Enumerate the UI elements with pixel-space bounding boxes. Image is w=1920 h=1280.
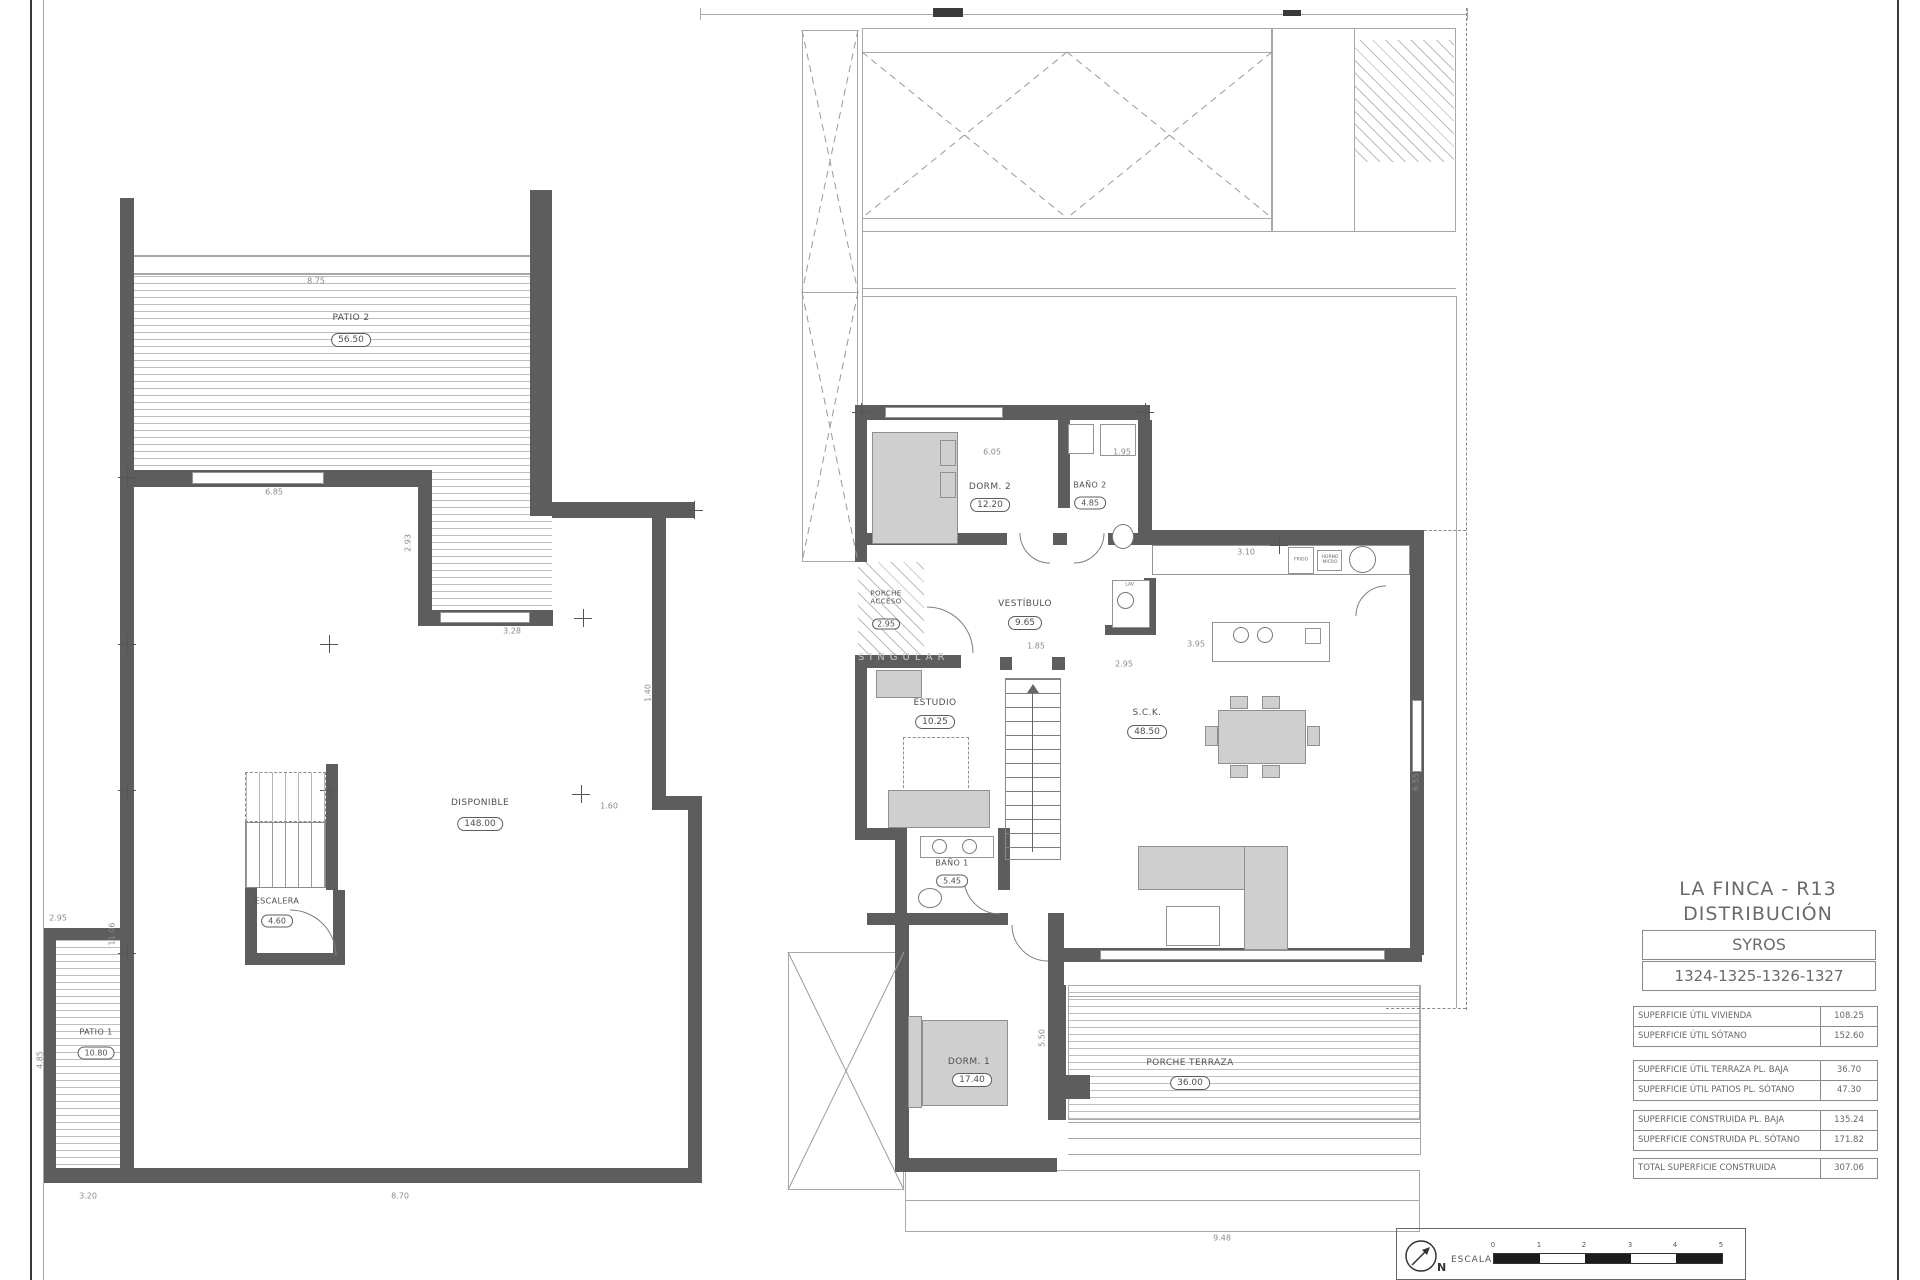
room-label-escalera: ESCALERA [255,897,300,906]
dim-text: 1.95 [1113,448,1131,457]
room-label-bano2: BAÑO 2 [1073,481,1106,490]
row-label: SUPERFICIE ÚTIL PATIOS PL. SÓTANO [1634,1081,1820,1100]
table-row: TOTAL SUPERFICIE CONSTRUIDA307.06 [1634,1159,1877,1178]
table-row: SUPERFICIE CONSTRUIDA PL. SÓTANO171.82 [1634,1130,1877,1150]
row-label: SUPERFICIE ÚTIL VIVIENDA [1634,1007,1820,1026]
room-label-dorm1: DORM. 1 [948,1057,990,1067]
terrace-x-lines [788,952,904,1190]
table-row: SUPERFICIE ÚTIL SÓTANO152.60 [1634,1026,1877,1046]
room-area-dorm1: 17.40 [952,1073,992,1087]
room-area-disponible: 148.00 [457,817,503,831]
unit-numbers-box: 1324-1325-1326-1327 [1642,961,1876,991]
room-label-bano1: BAÑO 1 [935,859,968,868]
dim-text: 6.55 [1412,773,1421,791]
dim-text: 8.75 [307,277,325,286]
room-area-dorm2: 12.20 [970,498,1010,512]
room-label-sck: S.C.K. [1133,708,1162,718]
room-label-patio1: PATIO 1 [79,1028,112,1037]
project-title: LA FINCA - R13 [1638,878,1878,900]
room-area-bano1: 5.45 [936,875,968,888]
dim-text: 3.10 [1237,548,1255,557]
row-label: SUPERFICIE CONSTRUIDA PL. SÓTANO [1634,1131,1820,1150]
scale-segment [1631,1254,1677,1263]
dim-text: 1.40 [644,684,653,702]
dim-text: 9.48 [1213,1234,1231,1243]
row-value: 47.30 [1820,1081,1877,1100]
row-value: 171.82 [1820,1131,1877,1150]
scale-segment [1540,1254,1586,1263]
room-label-vestibulo: VESTÍBULO [998,599,1052,609]
room-area-vestibulo: 9.65 [1008,616,1042,630]
scale-segment [1676,1254,1722,1263]
drawing-sheet: SINGULAR PATIO 2 56.50 DISPONIBLE 148.00… [0,0,1920,1280]
fridge-label: FRIGO [1294,559,1308,564]
row-label: SUPERFICIE ÚTIL TERRAZA PL. BAJA [1634,1061,1820,1080]
oven-micro-label: HORNO MICRO [1319,556,1341,566]
dim-text: 6.05 [983,448,1001,457]
room-area-porche-terraza: 36.00 [1170,1076,1210,1090]
scale-bar-box: N ESCALA 0 1 2 3 4 5 [1396,1228,1746,1280]
area-table-util-group: SUPERFICIE ÚTIL VIVIENDA108.25 SUPERFICI… [1633,1006,1878,1047]
scale-segment [1585,1254,1631,1263]
dim-text: 2.93 [404,534,413,552]
dim-text: 1.60 [600,802,618,811]
row-label: TOTAL SUPERFICIE CONSTRUIDA [1634,1159,1820,1178]
dashed-roof-and-doors-overlay [0,0,1920,1280]
area-table-total-group: TOTAL SUPERFICIE CONSTRUIDA307.06 [1633,1158,1878,1179]
room-area-estudio: 10.25 [915,715,955,729]
table-row: SUPERFICIE CONSTRUIDA PL. BAJA135.24 [1634,1111,1877,1130]
table-row: SUPERFICIE ÚTIL PATIOS PL. SÓTANO47.30 [1634,1080,1877,1100]
room-area-patio2: 56.50 [331,333,371,347]
dim-text: 11.06 [108,923,117,946]
scale-segment [1494,1254,1540,1263]
washer-label: LAV. [1125,584,1134,589]
row-value: 108.25 [1820,1007,1877,1026]
row-value: 36.70 [1820,1061,1877,1080]
table-row: SUPERFICIE ÚTIL TERRAZA PL. BAJA36.70 [1634,1061,1877,1080]
scale-tick: 1 [1537,1241,1541,1249]
room-area-bano2: 4.85 [1074,497,1106,510]
dim-text: 5.50 [1038,1029,1047,1047]
drawing-subtitle: DISTRIBUCIÓN [1638,903,1878,925]
north-arrow-icon [1403,1237,1441,1275]
dim-text: 8.70 [391,1192,409,1201]
room-label-dorm2: DORM. 2 [969,482,1011,492]
escala-label: ESCALA [1451,1255,1492,1265]
area-table-terraza-group: SUPERFICIE ÚTIL TERRAZA PL. BAJA36.70 SU… [1633,1060,1878,1101]
scale-tick: 0 [1491,1241,1495,1249]
room-label-patio2: PATIO 2 [333,313,370,323]
dim-text: 2.95 [49,914,67,923]
room-area-porche-acceso: 2.95 [872,619,900,630]
dim-text: 3.20 [79,1192,97,1201]
dim-text: 1.85 [1027,642,1045,651]
row-value: 307.06 [1820,1159,1877,1178]
north-label: N [1437,1261,1446,1274]
dim-text: 3.28 [503,627,521,636]
row-value: 135.24 [1820,1111,1877,1130]
graphic-scale [1493,1253,1723,1264]
row-label: SUPERFICIE CONSTRUIDA PL. BAJA [1634,1111,1820,1130]
dim-text: 4.85 [36,1051,45,1069]
door-swing-arcs [290,533,1386,961]
room-area-patio1: 10.80 [78,1047,115,1060]
room-area-sck: 48.50 [1127,725,1167,739]
scale-tick: 4 [1673,1241,1677,1249]
scale-tick: 2 [1582,1241,1586,1249]
room-label-estudio: ESTUDIO [914,698,957,708]
pergola-x-lines [802,30,1272,562]
watermark-text: SINGULAR [858,652,949,663]
scale-tick: 3 [1628,1241,1632,1249]
scale-tick: 5 [1719,1241,1723,1249]
dim-text: 3.95 [1187,640,1205,649]
room-area-escalera: 4.60 [261,915,293,928]
room-label-porche-terraza: PORCHE TERRAZA [1146,1058,1233,1068]
table-row: SUPERFICIE ÚTIL VIVIENDA108.25 [1634,1007,1877,1026]
room-label-porche-acceso: PORCHE ACCESO [863,590,909,605]
row-value: 152.60 [1820,1027,1877,1046]
row-label: SUPERFICIE ÚTIL SÓTANO [1634,1027,1820,1046]
room-label-disponible: DISPONIBLE [451,798,509,808]
model-name-box: SYROS [1642,930,1876,960]
area-table-construida-group: SUPERFICIE CONSTRUIDA PL. BAJA135.24 SUP… [1633,1110,1878,1151]
dim-text: 6.85 [265,488,283,497]
dim-text: 2.95 [1115,660,1133,669]
